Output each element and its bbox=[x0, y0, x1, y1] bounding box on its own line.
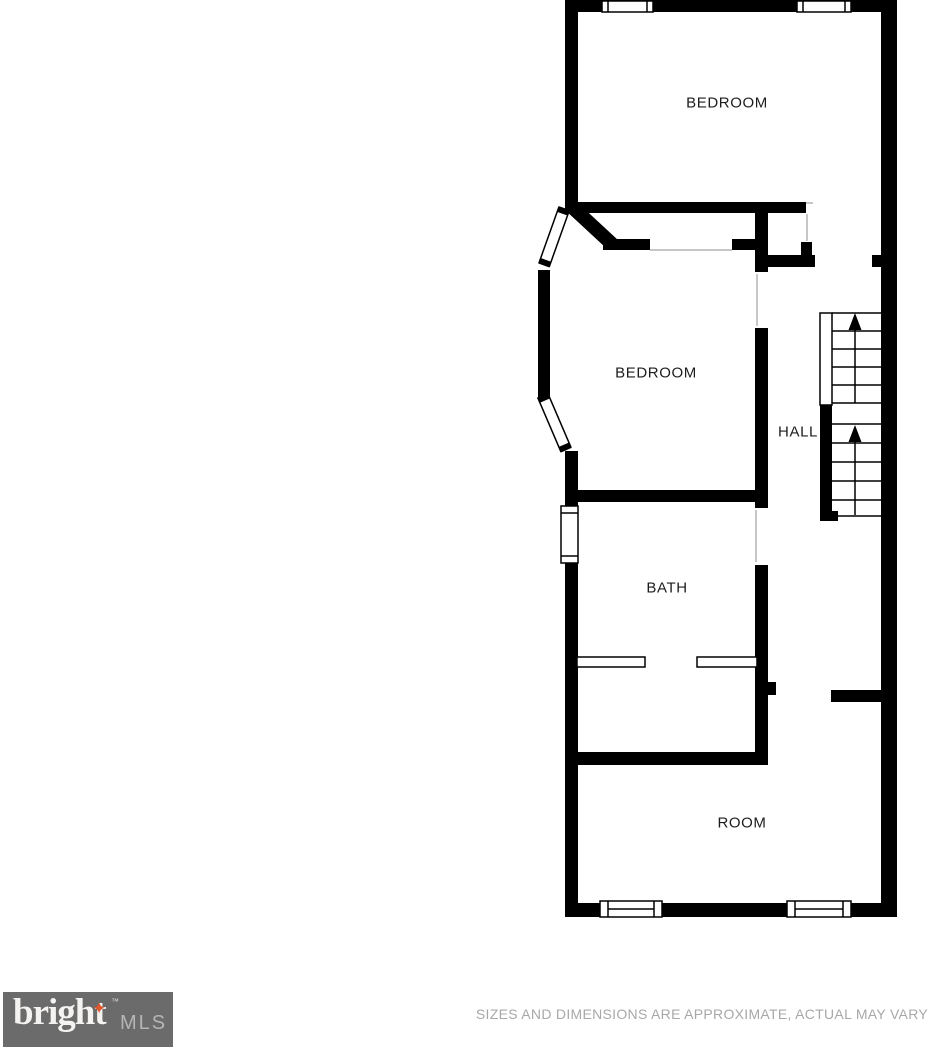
bath-window bbox=[561, 506, 578, 563]
bay-window-upper bbox=[539, 206, 570, 267]
stair-up-arrow-icon bbox=[849, 313, 862, 515]
room-label-bedroom-2: BEDROOM bbox=[615, 365, 697, 382]
bay-window-lower bbox=[538, 393, 572, 452]
bath-partitions bbox=[577, 657, 757, 667]
room-label-bath: BATH bbox=[646, 580, 687, 597]
floor-plan-page: BEDROOM BEDROOM HALL BATH ROOM bright ✦ … bbox=[0, 0, 930, 1047]
walls bbox=[538, 0, 897, 917]
star-icon: ✦ bbox=[92, 1000, 106, 1017]
trademark-symbol: ™ bbox=[111, 998, 119, 1006]
floor-plan-drawing bbox=[0, 0, 930, 1047]
room-label-room: ROOM bbox=[717, 815, 766, 832]
brightmls-logo-suffix: MLS bbox=[120, 1013, 167, 1033]
disclaimer-text: SIZES AND DIMENSIONS ARE APPROXIMATE, AC… bbox=[476, 1006, 928, 1022]
room-label-hall: HALL bbox=[778, 424, 818, 441]
brightmls-logo: bright ✦ ™ MLS bbox=[3, 992, 173, 1047]
room-label-bedroom-1: BEDROOM bbox=[686, 95, 768, 112]
